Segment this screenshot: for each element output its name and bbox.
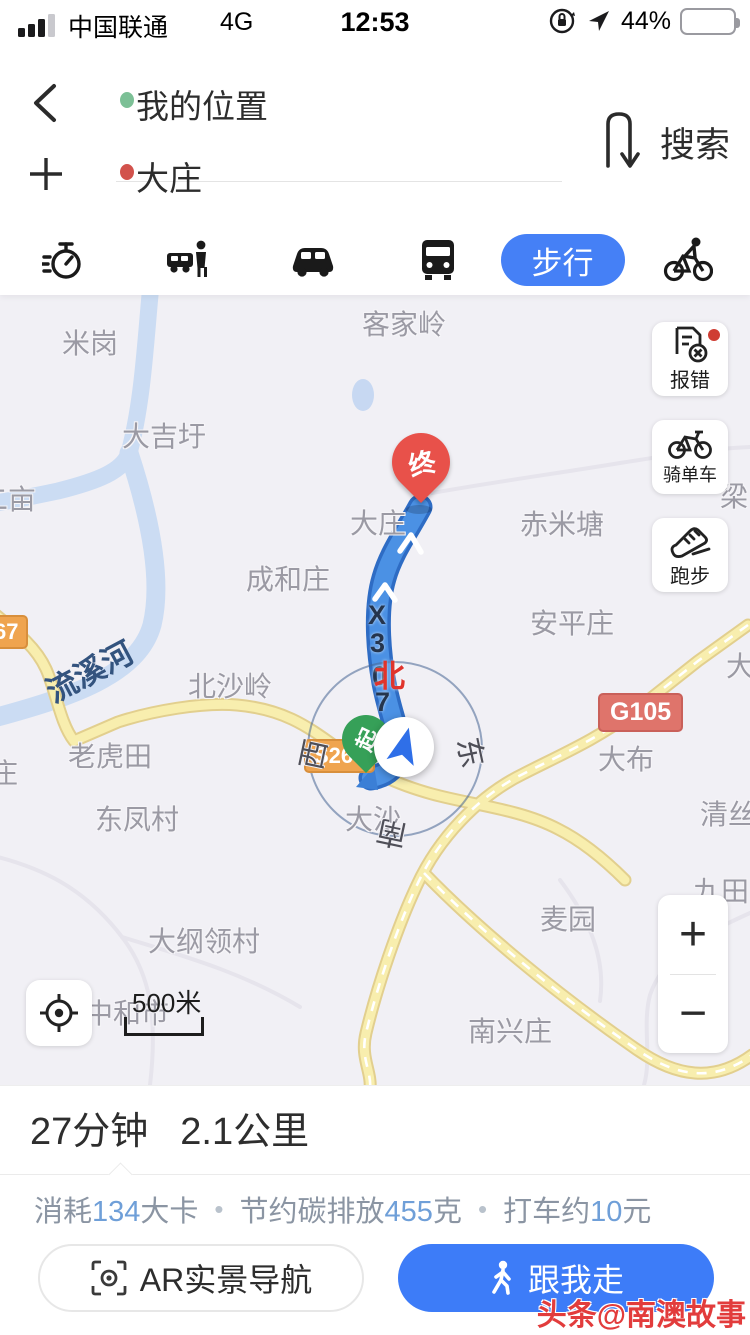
map-label: 大庄	[350, 502, 406, 542]
road-shield: G105	[598, 693, 683, 732]
map-label: 清丝	[700, 793, 750, 833]
tab-timer[interactable]	[0, 237, 125, 283]
report-error-label: 报错	[670, 364, 710, 393]
map-label: 北沙岭	[188, 665, 272, 705]
ar-button-label: AR实景导航	[140, 1255, 312, 1301]
route-search-panel: 我的位置 大庄 搜索 步行	[0, 44, 750, 295]
current-location-indicator	[374, 717, 434, 777]
map-label: 大吉圩	[122, 415, 206, 455]
zoom-control: + −	[658, 895, 728, 1053]
stat-item: 消耗134大卡	[34, 1188, 198, 1230]
report-error-button[interactable]: 报错	[652, 322, 728, 396]
origin-field[interactable]: 我的位置	[136, 80, 268, 128]
compass-north: 北	[374, 651, 405, 696]
running-mode-button[interactable]: 跑步	[652, 518, 728, 592]
destination-field[interactable]: 大庄	[136, 152, 202, 200]
cycling-mode-button[interactable]: 骑单车	[652, 420, 728, 494]
origin-dot-icon	[120, 92, 134, 108]
running-label: 跑步	[670, 560, 710, 589]
report-error-icon	[672, 325, 708, 363]
map-label: 麦园	[540, 898, 596, 938]
map-label: 大	[726, 645, 750, 685]
car-icon	[289, 242, 337, 278]
road-shield: 67	[0, 615, 28, 649]
status-bar: 中国联通 4G 12:53 44%	[0, 0, 750, 44]
map-label: 大纲领村	[148, 920, 260, 960]
locate-me-button[interactable]	[26, 980, 92, 1046]
divider-caret	[108, 1162, 132, 1186]
map-label: 二亩	[0, 478, 36, 518]
battery-percent: 44%	[621, 7, 671, 36]
walk-tab-pill: 步行	[501, 234, 625, 286]
stat-item: 节约碳排放455克	[240, 1188, 462, 1230]
stat-separator: •	[478, 1194, 487, 1225]
walking-person-icon	[488, 1260, 516, 1296]
destination-dot-icon	[120, 164, 134, 180]
map-canvas[interactable]: 东 西 南 北 米岗客家岭大吉圩二亩大庄赤米塘梁成和庄安平庄北沙岭大老虎田庄东凤…	[0, 295, 750, 1085]
taxi-icon	[165, 237, 211, 283]
running-shoe-icon	[669, 521, 711, 559]
transport-mode-tabs: 步行	[0, 225, 750, 295]
map-label: 安平庄	[530, 602, 614, 642]
tab-transit[interactable]	[375, 238, 500, 282]
route-distance: 2.1公里	[180, 1100, 309, 1155]
tab-walk[interactable]: 步行	[500, 234, 625, 286]
orientation-lock-icon	[547, 6, 577, 36]
zoom-in-button[interactable]: +	[658, 895, 728, 974]
cyclist-icon	[663, 237, 713, 283]
stats-row: 消耗134大卡•节约碳排放455克•打车约10元	[34, 1188, 651, 1230]
add-waypoint-button[interactable]	[24, 152, 68, 196]
zoom-out-button[interactable]: −	[658, 975, 728, 1054]
pond	[352, 379, 374, 411]
ar-navigation-button[interactable]: AR实景导航	[38, 1244, 364, 1312]
swap-origin-destination-button[interactable]	[592, 106, 648, 176]
stopwatch-icon	[42, 237, 84, 283]
map-label: 赤米塘	[520, 503, 604, 543]
route-road-char: X	[368, 600, 386, 631]
battery-icon	[680, 8, 736, 35]
stat-separator: •	[214, 1194, 223, 1225]
tab-cycle[interactable]	[625, 237, 750, 283]
crosshair-icon	[38, 992, 80, 1034]
map-label: 客家岭	[362, 303, 446, 343]
back-button[interactable]	[26, 80, 66, 126]
ar-viewfinder-icon	[90, 1259, 128, 1297]
tab-taxi[interactable]	[125, 237, 250, 283]
tab-drive[interactable]	[250, 242, 375, 278]
map-scale-label: 500米	[132, 983, 201, 1020]
notification-dot	[708, 329, 720, 341]
map-label: 米岗	[62, 322, 118, 362]
map-label: 大布	[598, 738, 654, 778]
cycling-label: 骑单车	[663, 461, 717, 487]
map-scale-bar	[124, 1017, 204, 1036]
route-duration: 27分钟	[30, 1100, 148, 1155]
pin-shadow	[406, 505, 432, 514]
map-label: 成和庄	[246, 558, 330, 598]
sheet-divider	[0, 1174, 750, 1175]
map-label: 南兴庄	[468, 1010, 552, 1050]
map-label: 东凤村	[95, 798, 179, 838]
stat-item: 打车约10元	[503, 1188, 651, 1230]
map-label: 老虎田	[68, 735, 152, 775]
watermark: 头条@南澳故事	[537, 1290, 746, 1334]
map-label: 庄	[0, 752, 18, 792]
bus-icon	[419, 238, 457, 282]
location-arrow-icon	[586, 8, 612, 34]
bicycle-icon	[668, 428, 712, 460]
search-button[interactable]: 搜索	[660, 117, 730, 168]
